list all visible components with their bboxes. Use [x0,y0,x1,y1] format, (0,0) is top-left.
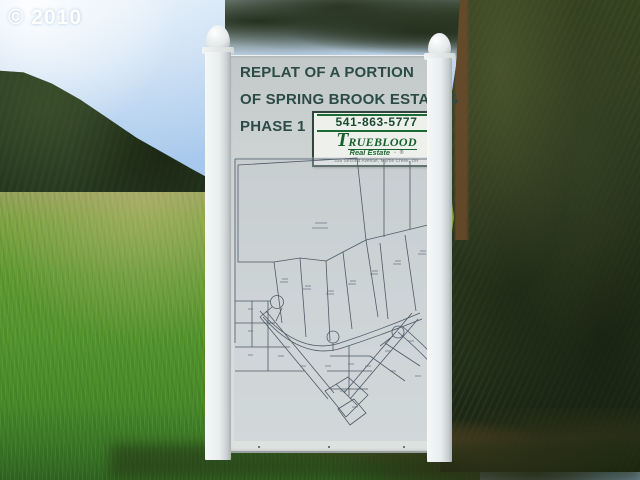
sign-title-line2: OF SPRING BROOK ESTATES [240,91,458,108]
sign-title-line1: REPLAT OF A PORTION [240,64,414,81]
copyright-watermark: © 2010 [8,6,82,30]
right-sign-post [427,58,452,462]
sign-board: REPLAT OF A PORTION OF SPRING BROOK ESTA… [228,55,444,453]
phone-number: 541-863-5777 [336,116,418,129]
brand-initial: T [336,133,348,147]
contact-rule-mid [317,130,437,132]
sign-title-line3: PHASE 1 [240,118,306,135]
left-sign-post [205,52,231,460]
plat-map [230,151,442,449]
map-background [234,157,438,441]
evergreen-trees [440,0,640,472]
